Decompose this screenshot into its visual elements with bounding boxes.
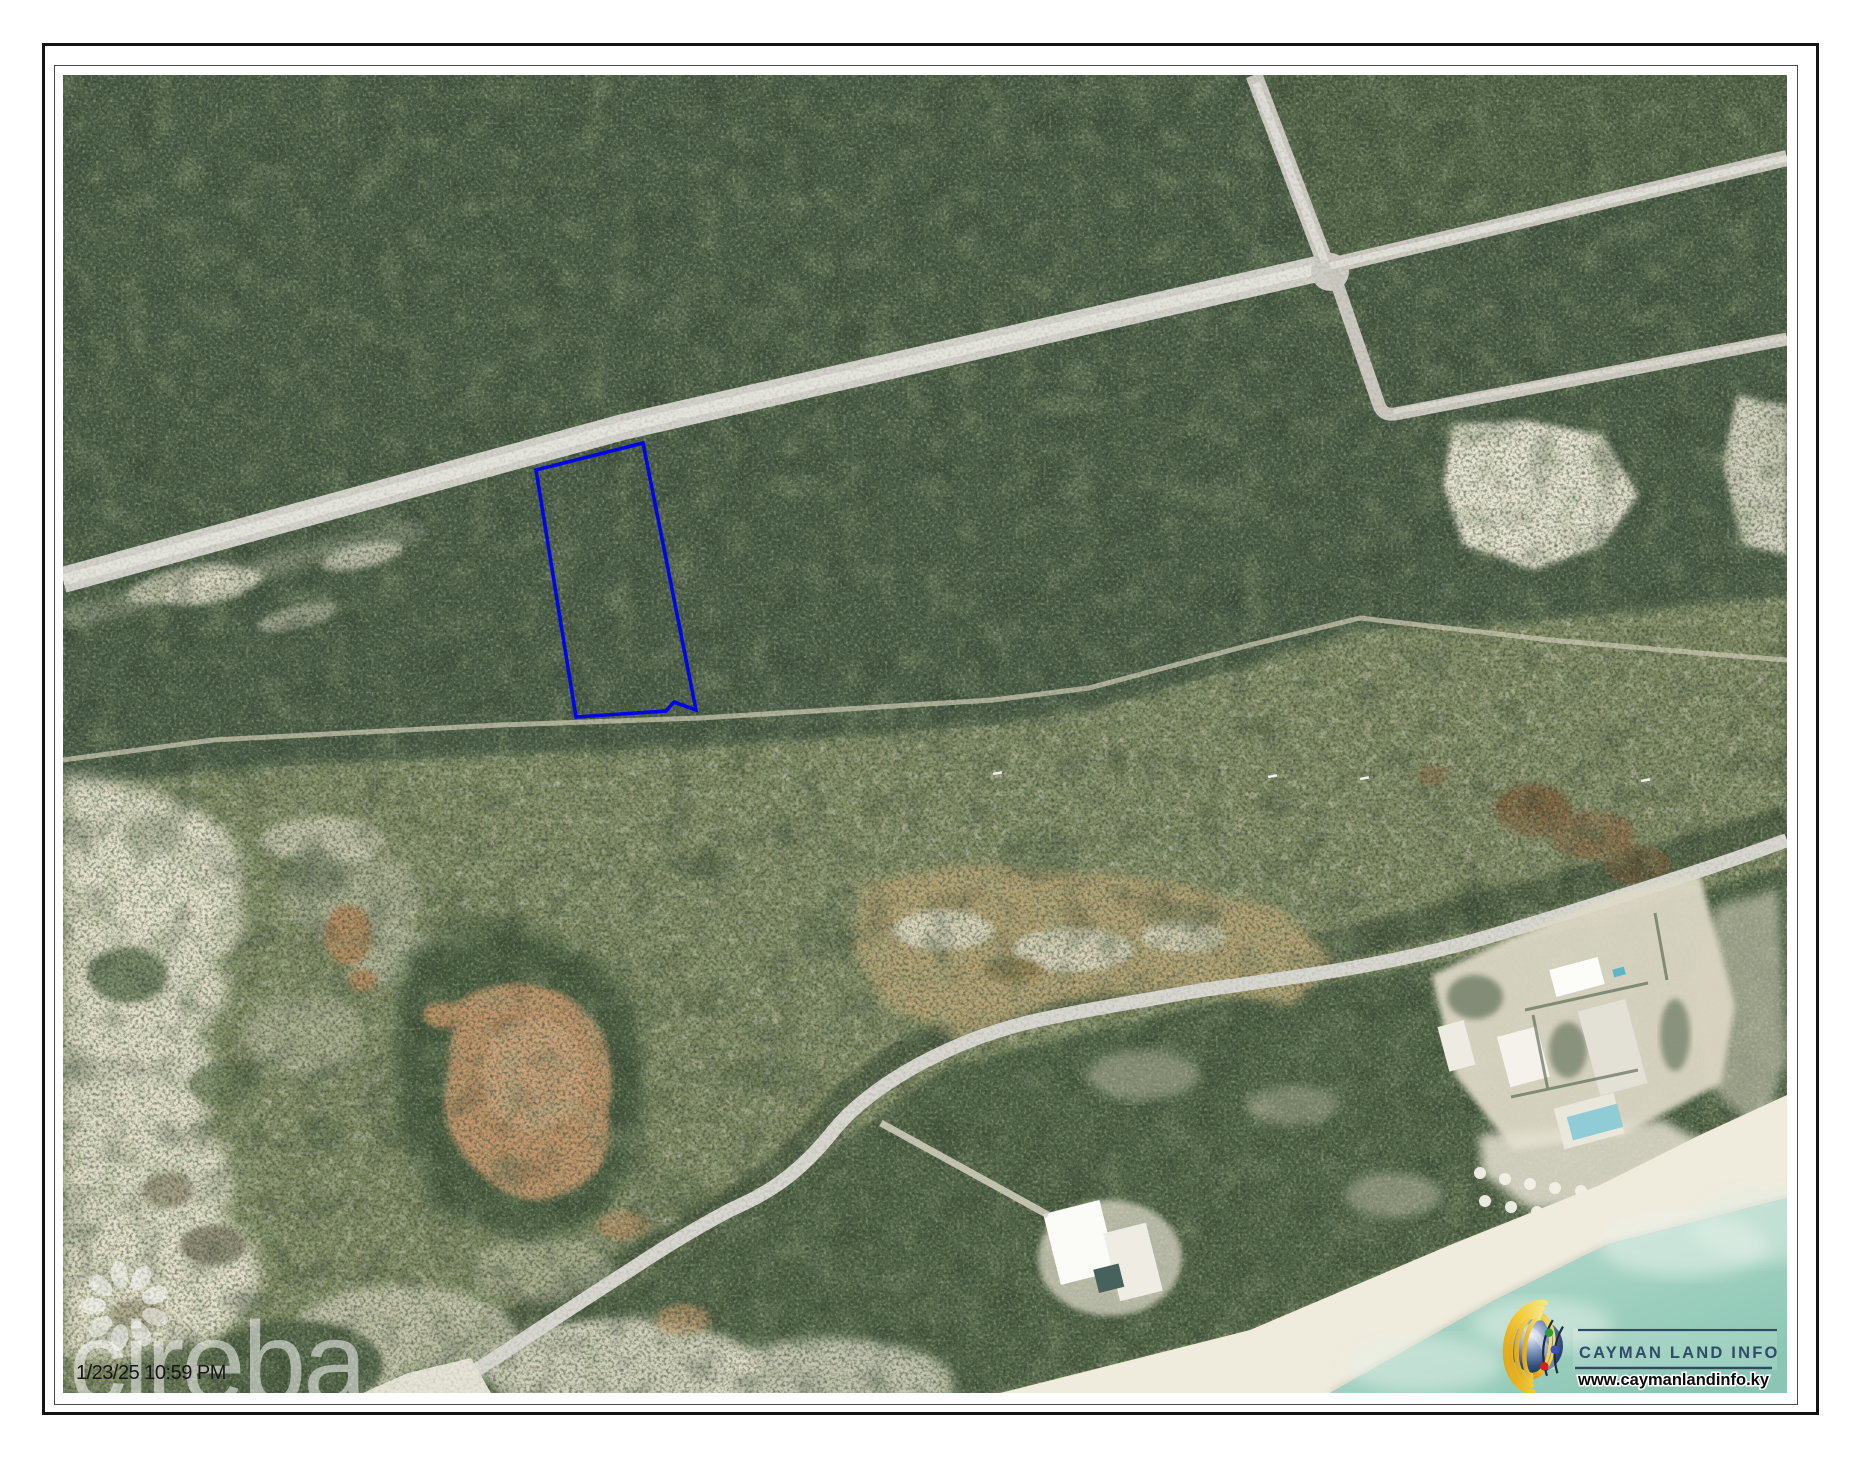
svg-text:CAYMAN LAND INFO: CAYMAN LAND INFO [1579, 1344, 1780, 1362]
svg-text:www.caymanlandinfo.ky: www.caymanlandinfo.ky [1577, 1371, 1770, 1389]
